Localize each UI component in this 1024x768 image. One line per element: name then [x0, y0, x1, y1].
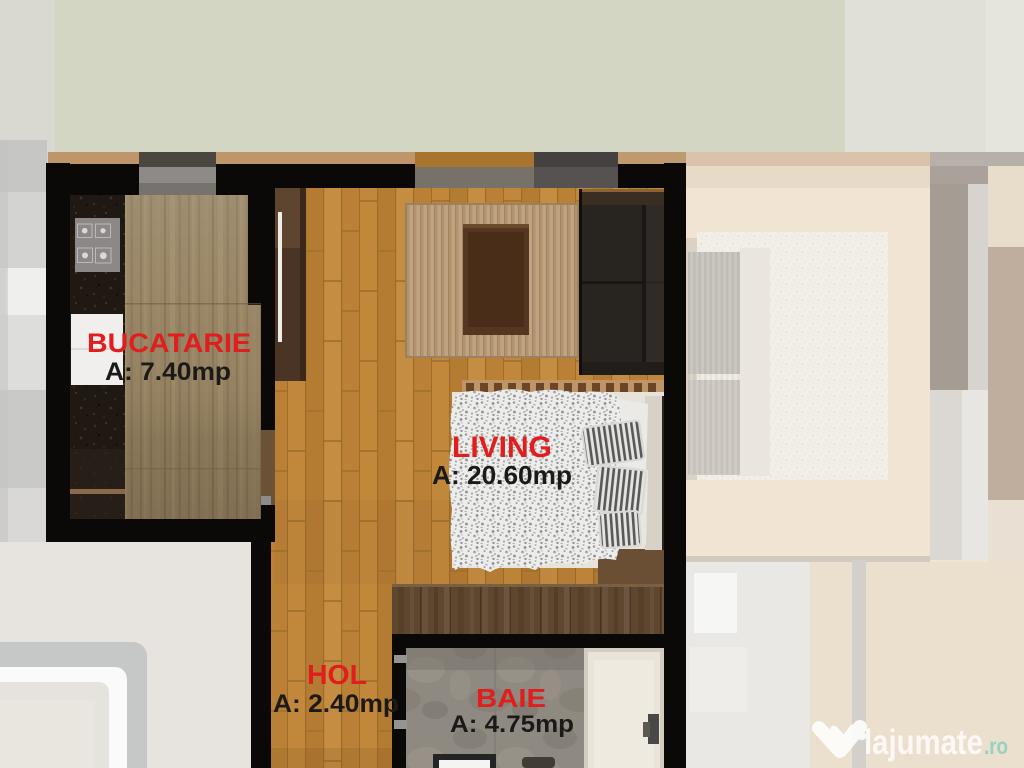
svg-text:BAIE: BAIE: [476, 683, 546, 713]
svg-text:A: 2.40mp: A: 2.40mp: [273, 690, 399, 718]
svg-text:A: 7.40mp: A: 7.40mp: [105, 358, 231, 386]
svg-text:BUCATARIE: BUCATARIE: [87, 328, 251, 358]
svg-text:A: 4.75mp: A: 4.75mp: [450, 711, 574, 738]
svg-text:HOL: HOL: [307, 659, 367, 690]
svg-text:lajumate: lajumate: [864, 723, 983, 762]
svg-text:.ro: .ro: [984, 733, 1008, 759]
svg-text:A: 20.60mp: A: 20.60mp: [432, 460, 572, 490]
